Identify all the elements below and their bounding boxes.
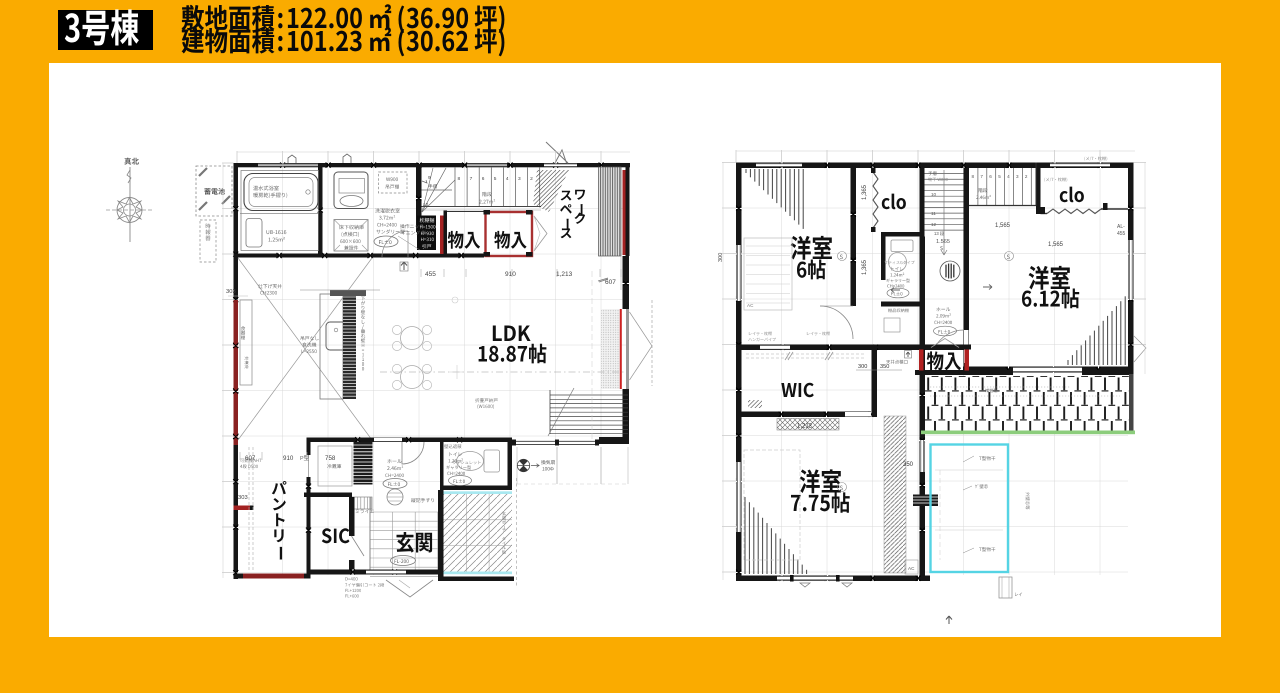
svg-text:910: 910 xyxy=(505,271,516,278)
svg-text:10: 10 xyxy=(931,192,937,197)
svg-text:455: 455 xyxy=(425,271,436,278)
svg-text:5: 5 xyxy=(494,176,497,182)
svg-text:7: 7 xyxy=(470,176,473,182)
svg-text:1,213: 1,213 xyxy=(556,271,573,278)
svg-text:1,565: 1,565 xyxy=(995,223,1011,229)
svg-text:350: 350 xyxy=(903,462,914,468)
svg-text:3: 3 xyxy=(1016,174,1019,179)
svg-text:7: 7 xyxy=(980,174,983,179)
svg-text:4: 4 xyxy=(506,176,509,182)
svg-text:607: 607 xyxy=(245,455,256,462)
svg-text:758: 758 xyxy=(325,455,336,462)
svg-text:13 段: 13 段 xyxy=(934,230,945,237)
svg-text:11: 11 xyxy=(931,211,936,216)
svg-text:3: 3 xyxy=(518,176,521,182)
svg-text:P型: P型 xyxy=(300,454,310,462)
svg-text:8: 8 xyxy=(972,174,975,179)
svg-text:2: 2 xyxy=(530,176,533,182)
svg-text:300: 300 xyxy=(858,364,867,370)
svg-text:910: 910 xyxy=(283,455,294,462)
svg-text:10: 10 xyxy=(423,202,429,208)
svg-text:6: 6 xyxy=(989,174,992,179)
svg-text:AC: AC xyxy=(747,303,754,308)
svg-text:607: 607 xyxy=(605,279,616,286)
svg-text:455: 455 xyxy=(1117,231,1126,237)
svg-text:12: 12 xyxy=(931,222,937,227)
svg-text:2: 2 xyxy=(1025,174,1028,179)
svg-text:AL-: AL- xyxy=(1117,224,1125,230)
svg-text:6: 6 xyxy=(482,176,485,182)
svg-text:350: 350 xyxy=(880,364,889,370)
svg-text:AC: AC xyxy=(908,566,915,571)
svg-text:303: 303 xyxy=(226,289,236,295)
svg-text:1.565: 1.565 xyxy=(936,239,950,245)
svg-text:8: 8 xyxy=(458,176,461,182)
svg-text:4: 4 xyxy=(1007,174,1010,179)
svg-text:5: 5 xyxy=(998,174,1001,179)
svg-text:レイ: レイ xyxy=(1014,592,1023,597)
svg-text:1,365: 1,365 xyxy=(862,184,868,200)
svg-text:303: 303 xyxy=(238,495,248,501)
svg-text:1,565: 1,565 xyxy=(1048,242,1064,248)
svg-text:1,365: 1,365 xyxy=(862,259,868,275)
svg-text:1,212: 1,212 xyxy=(797,424,813,430)
svg-text:9: 9 xyxy=(428,175,431,181)
